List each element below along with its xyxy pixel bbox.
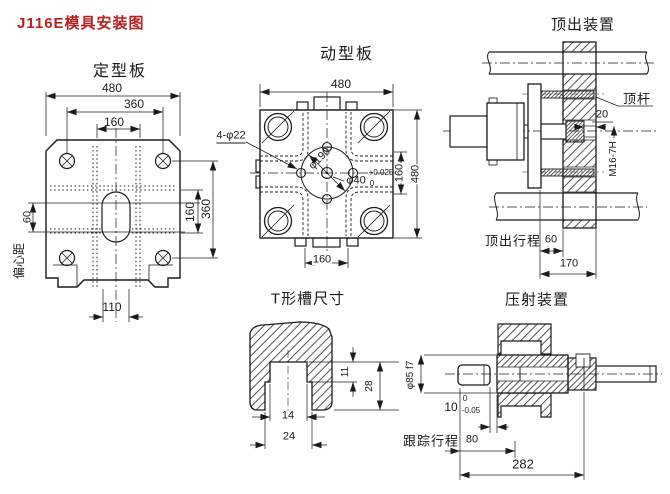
dim-moving-right-160: 160 (395, 163, 406, 183)
dim-fixed-right-360: 360 (200, 199, 212, 219)
plunger-dia-callout: φ85 f7 (406, 361, 416, 390)
tracking-stroke-label: 跟踪行程 (403, 435, 459, 448)
ejector-rod-label: 顶杆 (623, 93, 651, 106)
dim-moving-bottom-160: 160 (312, 255, 332, 266)
dim-moving-480-top: 480 (331, 78, 351, 90)
dim-tslot-11: 11 (341, 367, 351, 377)
drawing-sheet: J116E模具安装图 定型板 480 360 160 160 360 60 偏心… (0, 0, 670, 494)
dim-ejector-170: 170 (560, 259, 578, 270)
dim-injection-282: 282 (512, 458, 534, 471)
offset-label: 偏心距 (13, 243, 25, 279)
ejection-stroke-value: 60 (545, 235, 557, 246)
moving-platen-label: 动型板 (320, 47, 374, 63)
drawing-title: J116E模具安装图 (17, 12, 145, 33)
injection-tol-upper: 0 (463, 395, 467, 403)
fixed-platen-label: 定型板 (93, 64, 147, 80)
dim-moving-right-480: 480 (411, 164, 422, 184)
t-slot-label: T形槽尺寸 (271, 292, 345, 307)
t-slot-view (250, 322, 399, 449)
dim-fixed-360: 360 (124, 98, 144, 110)
center-hole-tol-upper: +0.025 (369, 169, 394, 177)
center-hole-tol-lower: 0 (370, 180, 374, 188)
dim-fixed-110: 110 (102, 301, 121, 313)
ejection-stroke-label: 顶出行程 (485, 235, 541, 248)
thread-spec: M16-7H (609, 140, 619, 178)
injection-unit-label: 压射装置 (505, 293, 569, 308)
holes-callout: 4-φ22 (216, 131, 245, 144)
dim-injection-10: 10 (444, 401, 457, 413)
dim-fixed-160: 160 (104, 116, 124, 128)
injection-tol-lower: -0.05 (462, 407, 480, 415)
dim-fixed-480: 480 (102, 82, 122, 94)
dim-fixed-right-160: 160 (184, 202, 196, 222)
dim-tslot-14: 14 (281, 411, 295, 422)
ejector-unit-label: 顶出装置 (551, 18, 615, 33)
tracking-stroke-value: 80 (466, 435, 478, 446)
center-hole-callout: φ40 (346, 176, 365, 187)
dim-tslot-28: 28 (365, 380, 375, 391)
dim-ejector-20: 20 (596, 110, 608, 121)
dim-offset-60: 60 (23, 211, 34, 223)
dim-tslot-24: 24 (283, 432, 295, 443)
